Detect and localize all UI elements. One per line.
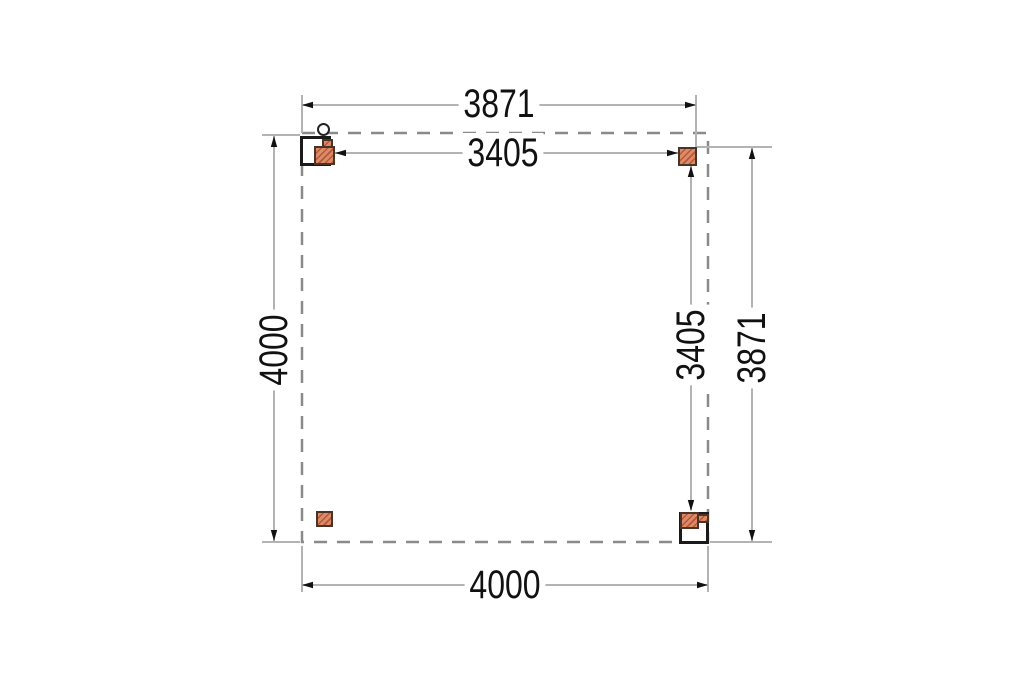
- floor-plan-canvas: 3871 3405 4000 3405 3871 4000: [0, 0, 1024, 683]
- post-top-right: [678, 147, 697, 166]
- arrow-bottom-right: [697, 582, 708, 588]
- arrow-left-top: [271, 136, 277, 147]
- dim-label-top-outer: 3871: [459, 84, 540, 124]
- post-bottom-right-strip: [697, 514, 709, 523]
- arrow-bottom-left: [302, 582, 313, 588]
- dashed-roof-outline: [302, 133, 708, 542]
- arrow-top-inner-left: [335, 150, 346, 156]
- arrow-top-inner-right: [667, 150, 678, 156]
- arrow-left-bottom: [271, 530, 277, 541]
- arrow-right-outer-top: [749, 148, 755, 159]
- dim-label-left-outer: 4000: [254, 310, 294, 391]
- dim-label-top-inner: 3405: [463, 133, 544, 173]
- dim-label-bottom-outer: 4000: [465, 565, 546, 605]
- dim-label-right-inner: 3405: [671, 305, 711, 386]
- post-bottom-left: [316, 511, 333, 527]
- arrow-right-inner-top: [688, 166, 694, 177]
- post-top-left: [314, 146, 335, 165]
- arrow-top-outer-left: [302, 102, 313, 108]
- arrow-right-inner-bottom: [688, 500, 694, 511]
- anchor-circle: [317, 123, 330, 136]
- dim-label-right-outer: 3871: [732, 308, 772, 389]
- arrow-right-outer-bottom: [749, 530, 755, 541]
- arrow-top-outer-right: [685, 102, 696, 108]
